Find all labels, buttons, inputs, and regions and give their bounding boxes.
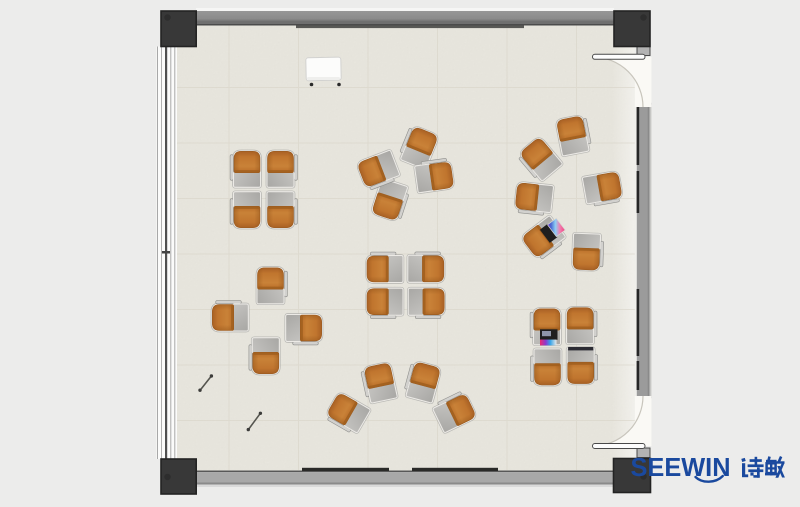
svg-text:SEEWIN: SEEWIN (631, 454, 731, 482)
